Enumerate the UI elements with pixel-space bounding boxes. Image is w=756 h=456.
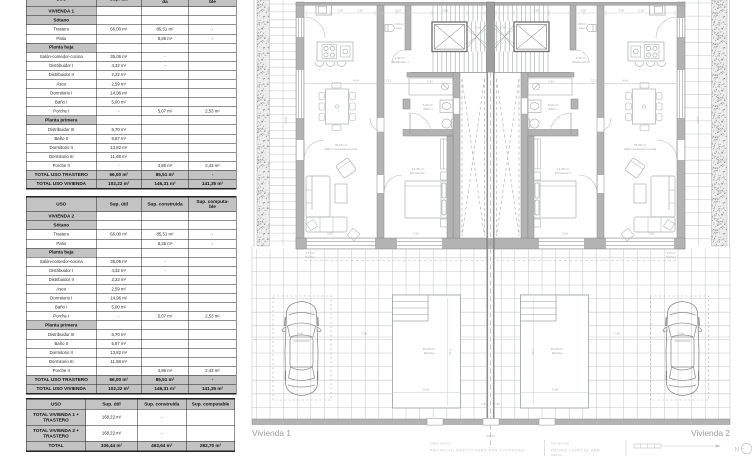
svg-text:Aseo: Aseo <box>579 26 586 30</box>
svg-text:Vivienda 2: Vivienda 2 <box>691 428 730 438</box>
svg-text:2,28: 2,28 <box>337 9 343 13</box>
svg-text:2,00: 2,00 <box>413 232 419 236</box>
svg-text:2,03: 2,03 <box>395 9 401 13</box>
svg-text:1,50: 1,50 <box>481 402 487 406</box>
svg-text:1,81: 1,81 <box>427 80 433 84</box>
svg-text:7,28: 7,28 <box>361 332 367 336</box>
svg-text:Piscina: Piscina <box>552 351 562 355</box>
svg-text:1,80: 1,80 <box>442 9 448 13</box>
svg-text:Distribuidor I: Distribuidor I <box>572 60 590 64</box>
svg-text:Dormitorio I: Dormitorio I <box>410 171 426 175</box>
svg-text:2,59 m²: 2,59 m² <box>394 22 403 26</box>
svg-text:Porche I: Porche I <box>305 255 315 259</box>
svg-text:Distribuidor I: Distribuidor I <box>391 60 409 64</box>
svg-text:19,03: 19,03 <box>284 116 288 124</box>
svg-text:PROMO LEVANTE ABM: PROMO LEVANTE ABM <box>551 449 600 453</box>
svg-text:PROMOTOR: PROMOTOR <box>551 442 569 446</box>
svg-text:2,31: 2,31 <box>590 79 596 83</box>
svg-text:5,46: 5,46 <box>448 349 452 355</box>
svg-text:1,80: 1,80 <box>533 9 539 13</box>
svg-text:5,06: 5,06 <box>678 332 684 336</box>
svg-text:3,28: 3,28 <box>357 9 363 13</box>
svg-text:Vivienda 1: Vivienda 1 <box>252 428 291 438</box>
svg-text:3,00: 3,00 <box>648 232 654 236</box>
svg-text:Salón-Comedor-Cocina: Salón-Comedor-Cocina <box>624 147 657 151</box>
svg-text:Porche I: Porche I <box>666 255 676 259</box>
svg-text:5,06: 5,06 <box>552 388 558 392</box>
svg-text:3,00: 3,00 <box>327 232 333 236</box>
svg-text:N: N <box>735 447 740 454</box>
svg-text:2,18: 2,18 <box>500 26 506 30</box>
svg-text:7,28: 7,28 <box>614 332 620 336</box>
svg-text:5,06: 5,06 <box>423 388 429 392</box>
svg-text:1,81: 1,81 <box>548 80 554 84</box>
svg-text:5,07 m²: 5,07 m² <box>667 251 676 255</box>
svg-text:Baño I: Baño I <box>549 107 558 111</box>
svg-text:Baño I: Baño I <box>424 107 433 111</box>
svg-text:5,46: 5,46 <box>531 349 535 355</box>
svg-text:Dormitorio I: Dormitorio I <box>555 171 571 175</box>
svg-text:OBRA NUEVA: OBRA NUEVA <box>430 442 451 446</box>
svg-text:Piscina: Piscina <box>424 351 434 355</box>
svg-text:2,00: 2,00 <box>562 232 568 236</box>
svg-text:5,06: 5,06 <box>297 332 303 336</box>
svg-text:2,31: 2,31 <box>385 79 391 83</box>
svg-text:4,44: 4,44 <box>353 79 359 83</box>
svg-text:PROYECTO BASICO PARA DOS VIVIE: PROYECTO BASICO PARA DOS VIVIENDAS <box>430 449 525 453</box>
svg-text:3,28: 3,28 <box>618 9 624 13</box>
svg-text:4,44: 4,44 <box>622 79 628 83</box>
svg-text:Salón-Comedor-Cocina: Salón-Comedor-Cocina <box>325 147 358 151</box>
svg-text:2,03: 2,03 <box>580 9 586 13</box>
svg-text:2,59 m²: 2,59 m² <box>577 22 586 26</box>
svg-text:1,50: 1,50 <box>494 402 500 406</box>
svg-text:19,03: 19,03 <box>696 116 700 124</box>
svg-text:Aseo: Aseo <box>396 26 403 30</box>
svg-text:2,18: 2,18 <box>475 26 481 30</box>
svg-text:5,07 m²: 5,07 m² <box>306 251 315 255</box>
svg-text:2,28: 2,28 <box>638 9 644 13</box>
